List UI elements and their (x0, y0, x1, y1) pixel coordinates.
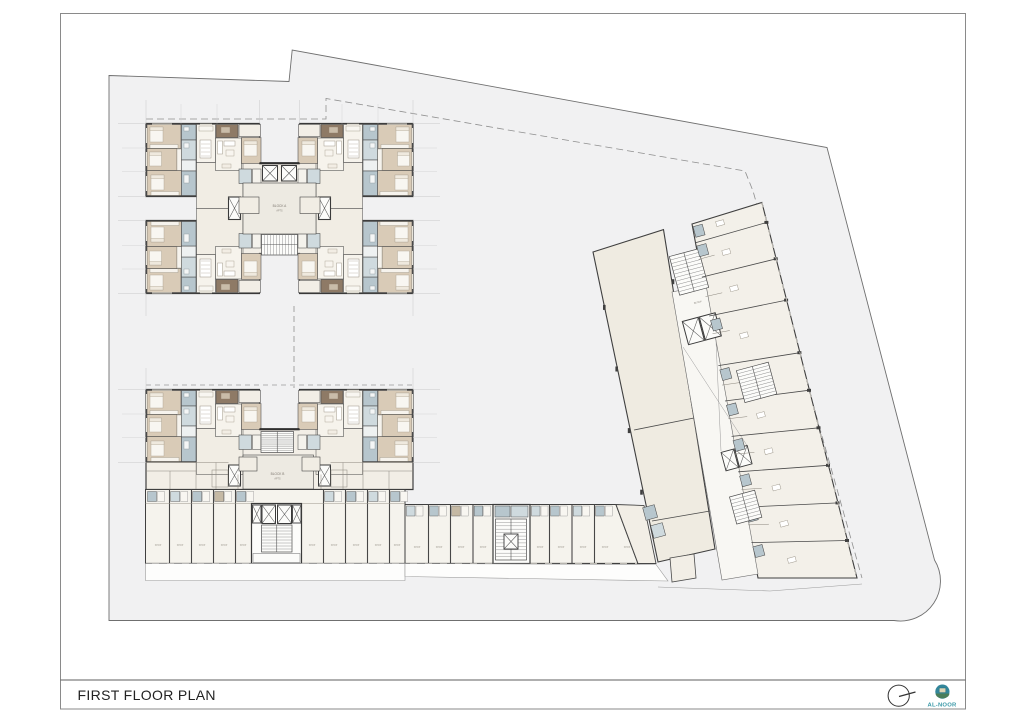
svg-text:SHOP: SHOP (624, 547, 631, 549)
svg-text:SHOP: SHOP (240, 545, 247, 547)
svg-text:SHOP: SHOP (331, 545, 338, 547)
svg-text:SHOP: SHOP (199, 545, 206, 547)
svg-text:SHOP: SHOP (221, 545, 228, 547)
svg-text:APTS: APTS (274, 478, 281, 481)
svg-text:SHOP: SHOP (580, 547, 587, 549)
svg-text:SHOP: SHOP (414, 547, 421, 549)
svg-text:BLOCK B: BLOCK B (271, 472, 285, 476)
svg-text:SHOP: SHOP (309, 545, 316, 547)
svg-text:SHOP: SHOP (458, 547, 465, 549)
svg-text:SHOP: SHOP (436, 547, 443, 549)
svg-text:SHOP: SHOP (375, 545, 382, 547)
svg-text:SHOP: SHOP (537, 547, 544, 549)
svg-text:SHOP: SHOP (480, 547, 487, 549)
svg-text:FIRST FLOOR PLAN: FIRST FLOOR PLAN (78, 687, 216, 703)
svg-text:SHOP: SHOP (177, 545, 184, 547)
svg-text:SHOP: SHOP (558, 547, 565, 549)
svg-text:SHOP: SHOP (155, 545, 162, 547)
svg-text:BLOCK A: BLOCK A (273, 204, 288, 208)
svg-text:SHOP: SHOP (394, 545, 401, 547)
svg-text:AL-NOOR: AL-NOOR (928, 703, 957, 709)
svg-text:SHOP: SHOP (602, 547, 609, 549)
svg-text:APTS: APTS (276, 210, 283, 213)
svg-text:SHOP: SHOP (353, 545, 360, 547)
